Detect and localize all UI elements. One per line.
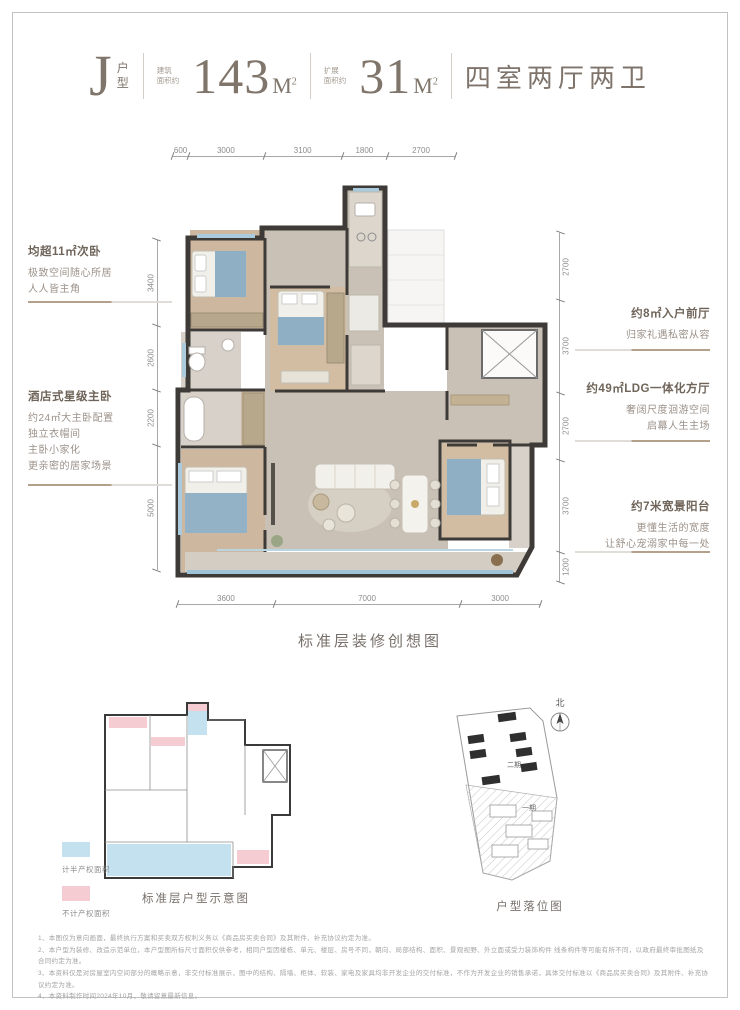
dim-label: 3700 [562,497,571,515]
annotation-title: 约7米宽景阳台 [578,498,710,514]
annotation-rule [575,349,710,351]
annotation-rule [28,484,172,486]
dim-label: 2700 [562,258,571,276]
mini-elevator [263,750,287,782]
unit-type-letter: J [89,50,112,102]
area2-label: 扩展 面积约 [324,66,347,86]
fridge [349,295,379,331]
half-area-block [188,711,207,735]
annotation-rule [28,301,172,303]
area1-value: 143 [192,51,270,101]
header-divider [451,53,452,99]
annotation-rule [575,440,710,442]
mini-floorplan [95,700,305,890]
area2-unit: M2 [413,73,438,99]
toilet [189,347,205,371]
main-floorplan [125,175,615,625]
wardrobe [191,313,263,327]
kitchen-island [351,345,381,385]
area2-label-l2: 面积约 [324,76,347,86]
annotation-line: 启幕人生主场 [578,419,710,435]
dimension-row-bottom: 3600 7000 3000 [178,592,540,608]
disclaimer-line: 2、本户型为装修、改造示范单位，本户型图所标尺寸面积仅供参考，相同户型因楼栋、单… [38,945,710,968]
area1-unit-letter: M [272,73,292,98]
dim-label: 3100 [264,146,342,155]
unit-type-suffix-l2: 型 [117,76,130,91]
disclaimer-line: 4、本资料制作时间2024年10月，敬请留意最新信息。 [38,991,710,1003]
annotation-line: 约24㎡大主卧配置 [28,411,160,427]
bed-bedroom4 [447,459,505,515]
dim-label: 3000 [188,146,264,155]
dim-label: 600 [173,146,188,155]
rooms-summary: 四室两厅两卫 [465,58,651,95]
phase2-label: 二期 [507,761,521,769]
area1-label-l2: 面积约 [157,76,180,86]
annotation-rule [575,551,710,553]
annotation-line: 主卧小家化 [28,443,160,459]
dimension-col-right: 2700 3700 2700 3700 1200 [556,233,576,582]
dim-label: 3000 [460,594,540,603]
legend: 计半产权面积 不计产权面积 [62,842,110,925]
annotation-line: 更懂生活的宽度 [578,521,710,537]
armchair [313,494,329,510]
dim-label: 7000 [274,594,460,603]
unit-type-suffix-l1: 户 [117,61,130,76]
area2-unit-sup: 2 [433,77,438,88]
annotation-line: 奢阔尺度洄游空间 [578,403,710,419]
excluded-area-strip [109,717,147,728]
annotation-line: 人人皆主角 [28,282,160,298]
dim-label: 3600 [178,594,274,603]
annotation-line: 独立衣帽间 [28,427,160,443]
kitchen-counter [349,192,382,267]
legend-label-excluded-area: 不计产权面积 [62,908,110,919]
header-divider [310,53,311,99]
area1-label-l1: 建筑 [157,66,180,76]
disclaimer-line: 3、本资料仅是对房屋室内空间部分的概略示意，非交付标准展示，图中的结构、隔墙、柜… [38,968,710,991]
area1-unit: M2 [272,73,297,99]
entry-cabinet [451,395,509,405]
bathroom2-floor [509,445,532,548]
north-label: 北 [555,698,564,708]
dresser [281,371,329,383]
annotation-line: 极致空间随心所居 [28,266,160,282]
area2-value: 31 [359,51,411,101]
dim-label: 2700 [387,146,455,155]
dining-set [390,475,440,533]
legend-label-half-area: 计半产权面积 [62,864,110,875]
excluded-area-strip [188,704,207,711]
excluded-area-strip [237,850,269,864]
unit-type-suffix: 户 型 [117,61,130,91]
dim-label: 2700 [562,417,571,435]
site-plan-caption: 户型落位图 [460,898,600,914]
area2-value-group: 31 M2 [359,51,438,101]
annotation-title: 约49㎡LDG一体化方厅 [578,380,710,396]
annotation-entry-hall: 约8㎡入户前厅 归家礼遇私密从容 [578,305,710,344]
annotation-balcony: 约7米宽景阳台 更懂生活的宽度 让舒心宠溺家中每一处 [578,498,710,553]
bed-bedroom2 [192,251,246,297]
phase1-label: 一期 [522,804,536,812]
mini-plan-caption: 标准层户型示意图 [116,890,276,906]
area1-label: 建筑 面积约 [157,66,180,86]
area2-unit-letter: M [413,73,433,98]
side-table [323,519,335,531]
header: J 户 型 建筑 面积约 143 M2 扩展 面积约 31 M2 四室两厅两卫 [0,50,740,102]
header-divider [143,53,144,99]
flyer-page: J 户 型 建筑 面积约 143 M2 扩展 面积约 31 M2 四室两厅两卫 [0,0,740,1010]
annotation-title: 酒店式星级主卧 [28,388,160,404]
annotation-master-bedroom: 酒店式星级主卧 约24㎡大主卧配置 独立衣帽间 主卧小家化 更亲密的居家场景 [28,388,160,475]
elevator-shaft [482,330,537,378]
annotation-line: 更亲密的居家场景 [28,459,160,475]
legend-swatch-excluded-area [62,886,90,901]
annotation-ldg-hall: 约49㎡LDG一体化方厅 奢阔尺度洄游空间 启幕人生主场 [578,380,710,435]
area2-label-l1: 扩展 [324,66,347,76]
dim-label: 1200 [562,558,571,576]
bed-master [185,467,247,533]
bed-bedroom3 [278,291,324,345]
annotation-line: 归家礼遇私密从容 [578,328,710,344]
tv-wall [271,463,275,525]
dim-label: 2600 [147,349,156,367]
legend-swatch-half-area [62,842,90,857]
north-compass: 北 [551,698,569,731]
dim-label: 3700 [562,338,571,356]
dimension-row-top: 600 3000 3100 1800 2700 [173,144,455,160]
closet [243,393,264,445]
excluded-area-strip [151,737,185,746]
annotation-title: 约8㎡入户前厅 [578,305,710,321]
area1-unit-sup: 2 [292,77,297,88]
disclaimer-line: 1、本图仅为意向画面，最终执行方案和买卖双方权利义务以《商品房买卖合同》及其附件… [38,933,710,945]
main-plan-caption: 标准层装修创想图 [170,630,570,651]
dim-label: 1800 [342,146,387,155]
area1-value-group: 143 M2 [192,51,297,101]
dim-label: 5000 [147,499,156,517]
annotation-title: 均超11㎡次卧 [28,243,160,259]
coffee-table [337,504,355,522]
disclaimer: 1、本图仅为意向画面，最终执行方案和买卖双方权利义务以《商品房买卖合同》及其附件… [38,933,710,1003]
site-plan: 北 二期 一期 [440,693,670,893]
wardrobe [327,293,344,363]
bathtub [184,397,204,441]
plant [491,554,503,566]
sofa [315,464,395,489]
sink [222,339,234,351]
annotation-secondary-bedrooms: 均超11㎡次卧 极致空间随心所居 人人皆主角 [28,243,160,298]
half-area-balcony [107,844,231,876]
plant [271,535,283,547]
shared-corridor [388,230,444,323]
